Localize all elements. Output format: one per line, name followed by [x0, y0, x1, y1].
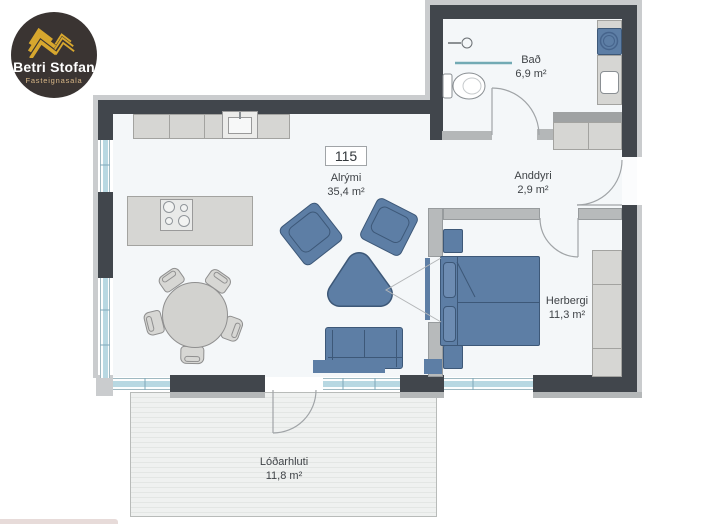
floor-plan: 115 Alrými 35,4 m² Bað 6,9 m² Anddyri 2,…: [0, 0, 709, 524]
room-name: Lóðarhluti: [260, 455, 308, 469]
room-name: Bað: [515, 53, 546, 67]
door-bath: [492, 88, 539, 135]
room-label-lodarhluti: Lóðarhluti 11,8 m²: [260, 455, 308, 483]
door-bedroom: [540, 218, 578, 257]
cooktop-burners: [164, 202, 190, 227]
plan-overlay: [0, 0, 709, 524]
room-name: Herbergi: [546, 294, 588, 308]
unit-number: 115: [325, 146, 367, 166]
room-label-anddyri: Anddyri 2,9 m²: [514, 169, 551, 197]
room-name: Anddyri: [514, 169, 551, 183]
door-terrace: [273, 390, 316, 433]
room-area: 2,9 m²: [514, 183, 551, 197]
bed-fold-line: [457, 262, 475, 297]
room-label-alrymi: Alrými 35,4 m²: [327, 171, 364, 199]
room-area: 11,3 m²: [546, 308, 588, 322]
logo-chevrons-icon: [22, 24, 86, 58]
washer-drum: [601, 33, 618, 50]
room-area: 35,4 m²: [327, 185, 364, 199]
room-name: Alrými: [327, 171, 364, 185]
door-entrance: [577, 160, 622, 205]
toilet: [443, 73, 485, 99]
opening-swing-lines: [386, 258, 441, 322]
window-ticks: [100, 165, 473, 390]
room-area: 11,8 m²: [260, 469, 308, 483]
room-label-bad: Bað 6,9 m²: [515, 53, 546, 81]
room-area: 6,9 m²: [515, 67, 546, 81]
coffee-table: [340, 265, 380, 294]
cropped-edge-artifact: [0, 519, 118, 524]
brand-name: Betri Stofan: [11, 59, 97, 75]
shower-head-icon: [448, 38, 472, 48]
brand-tagline: Fasteignasala: [11, 76, 97, 85]
brand-logo: Betri Stofan Fasteignasala: [11, 12, 97, 98]
room-label-herbergi: Herbergi 11,3 m²: [546, 294, 588, 322]
